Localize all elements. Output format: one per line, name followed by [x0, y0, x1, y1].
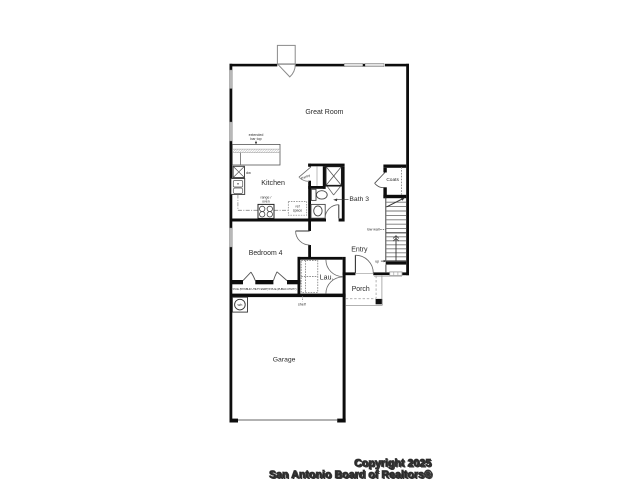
svg-text:low wall: low wall	[367, 228, 380, 232]
svg-text:Entry: Entry	[351, 247, 368, 254]
svg-text:Garage: Garage	[273, 356, 296, 363]
svg-text:bar top: bar top	[250, 137, 261, 141]
svg-text:Bedroom 4: Bedroom 4	[249, 250, 283, 257]
svg-text:shelf: shelf	[298, 303, 306, 307]
svg-text:space: space	[293, 209, 302, 213]
svg-text:Kitchen: Kitchen	[261, 179, 285, 187]
svg-text:San Antonio Board of Realtors®: San Antonio Board of Realtors®	[269, 469, 432, 480]
svg-text:up: up	[375, 260, 379, 264]
svg-text:wh: wh	[237, 303, 242, 307]
svg-text:Porch: Porch	[352, 286, 370, 293]
svg-text:oven: oven	[262, 200, 270, 204]
svg-text:dw: dw	[246, 171, 251, 175]
svg-text:Coats: Coats	[386, 177, 399, 183]
svg-text:Bath 3: Bath 3	[349, 196, 369, 203]
svg-text:Lau.: Lau.	[320, 274, 334, 281]
svg-text:Copyright 2025: Copyright 2025	[354, 457, 431, 469]
svg-text:5' P.U.E. (5' PUBLIC UTILITY E: 5' P.U.E. (5' PUBLIC UTILITY ESMT) 5' P.…	[231, 287, 297, 291]
svg-text:Great Room: Great Room	[305, 109, 343, 116]
